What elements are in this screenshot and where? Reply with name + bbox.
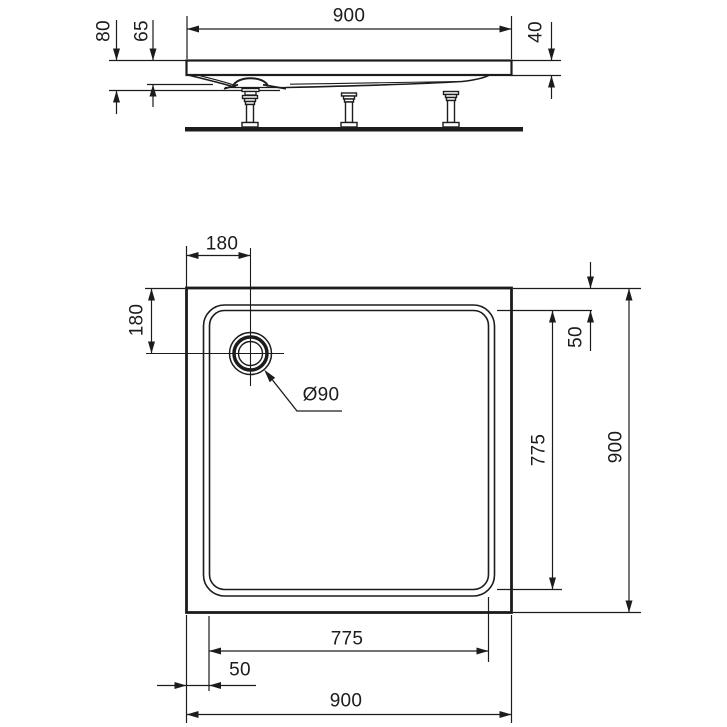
- plan-edge-gap-bottom-label: 50: [229, 661, 251, 680]
- plan-inner-span-right-label: 775: [530, 434, 549, 467]
- side-extension-lines: [109, 16, 561, 91]
- plan-drain-diameter-label: Ø90: [303, 386, 340, 405]
- drain-dome: [233, 78, 268, 86]
- side-rim-thickness-label: 40: [527, 21, 546, 43]
- plan-view: [145, 246, 641, 723]
- side-elevation-view: [109, 16, 561, 129]
- plan-overall-depth-label: 900: [607, 431, 626, 464]
- plan-drain-offset-top-label: 180: [206, 235, 239, 254]
- foot-middle: [341, 93, 357, 127]
- foot-left: [242, 96, 258, 128]
- drain-trap: [224, 78, 286, 95]
- plan-drain-offset-left-label: 180: [128, 304, 147, 337]
- plan-edge-gap-right-label: 50: [567, 326, 586, 348]
- tray-slab: [187, 61, 512, 76]
- technical-drawing: 80 65 900 40 180 180 Ø90 50 775 900 775 …: [0, 0, 727, 727]
- plan-inner-span-bottom-label: 775: [331, 630, 364, 649]
- foot-right: [443, 92, 459, 128]
- tray-outline: [187, 288, 512, 613]
- side-overall-width-label: 900: [333, 7, 366, 26]
- adjustable-feet: [242, 92, 459, 128]
- side-total-height-label: 80: [95, 20, 114, 42]
- plan-overall-width-label: 900: [330, 692, 363, 711]
- side-body-height-label: 65: [133, 20, 152, 42]
- drawing-geometry: [0, 0, 727, 727]
